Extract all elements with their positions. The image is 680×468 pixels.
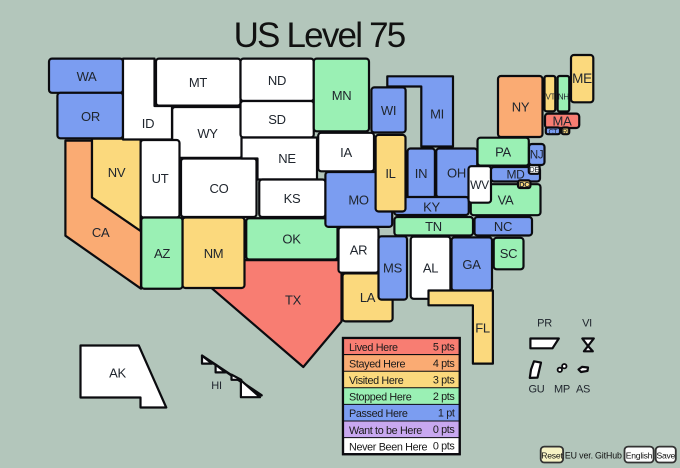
svg-text:CO: CO [210,181,229,196]
svg-text:WI: WI [381,103,396,118]
svg-text:Never Been Here: Never Been Here [349,441,428,453]
svg-text:NE: NE [278,151,296,166]
svg-text:5 pts: 5 pts [433,342,456,354]
svg-text:MI: MI [430,107,444,122]
svg-text:ID: ID [142,116,154,131]
svg-text:Reset: Reset [541,451,563,461]
svg-text:4 pts: 4 pts [433,358,456,370]
svg-text:AZ: AZ [154,246,170,261]
svg-text:TN: TN [425,219,442,234]
svg-text:FL: FL [475,321,490,336]
svg-text:AL: AL [423,261,438,276]
svg-text:CT: CT [549,129,559,136]
svg-text:PR: PR [537,318,552,330]
svg-text:NM: NM [204,246,224,261]
svg-text:2 pts: 2 pts [433,391,456,403]
svg-text:ND: ND [268,73,286,88]
svg-text:Visited Here: Visited Here [349,375,404,387]
svg-text:MT: MT [189,75,208,90]
svg-text:AK: AK [109,366,126,381]
svg-text:English: English [626,451,653,461]
svg-text:NV: NV [108,165,126,180]
svg-text:1 pt: 1 pt [438,408,455,420]
svg-text:3 pts: 3 pts [433,375,456,387]
svg-text:IA: IA [340,145,352,160]
svg-text:0 pts: 0 pts [433,441,456,453]
svg-text:HI: HI [211,380,222,392]
svg-text:OK: OK [282,232,301,247]
svg-text:GU: GU [529,384,545,396]
svg-text:SD: SD [268,112,285,127]
svg-text:NH: NH [558,93,569,102]
svg-text:VI: VI [582,318,592,330]
svg-text:Want to be Here: Want to be Here [349,425,422,437]
svg-text:Stopped Here: Stopped Here [349,392,412,404]
svg-text:OR: OR [81,109,100,124]
svg-text:NJ: NJ [530,150,543,162]
svg-text:IN: IN [415,166,427,181]
svg-text:AS: AS [576,384,590,396]
svg-text:TX: TX [285,293,302,308]
svg-text:NC: NC [494,219,512,234]
svg-text:KY: KY [423,200,440,215]
svg-text:Stayed Here: Stayed Here [349,358,406,370]
svg-text:Passed Here: Passed Here [349,408,408,420]
svg-text:NY: NY [512,100,530,115]
svg-text:VA: VA [498,193,514,208]
svg-text:VT: VT [545,93,555,102]
svg-text:WV: WV [470,178,489,192]
svg-text:GitHub: GitHub [595,450,622,460]
svg-text:LA: LA [360,290,376,305]
svg-text:ME: ME [572,71,592,86]
svg-text:AR: AR [350,243,367,258]
svg-text:WY: WY [197,126,218,141]
svg-text:DE: DE [529,165,539,174]
svg-text:0 pts: 0 pts [433,424,456,436]
svg-text:MN: MN [332,88,352,103]
svg-text:MS: MS [383,261,403,276]
svg-text:KS: KS [284,191,301,206]
svg-text:PA: PA [495,145,511,160]
svg-text:Lived Here: Lived Here [349,342,398,354]
svg-text:MO: MO [348,193,369,208]
svg-text:GA: GA [462,257,481,272]
svg-text:WA: WA [77,69,97,84]
svg-text:RI: RI [562,129,569,136]
svg-text:CA: CA [92,225,110,240]
svg-text:Save: Save [657,451,676,461]
svg-text:EU ver.: EU ver. [565,450,593,460]
svg-text:IL: IL [385,166,395,181]
svg-text:US Level 75: US Level 75 [234,16,405,55]
svg-text:MA: MA [553,114,573,129]
svg-text:SC: SC [500,246,517,261]
svg-text:UT: UT [152,171,169,186]
svg-text:MP: MP [554,384,570,396]
svg-text:OH: OH [447,166,466,181]
svg-text:DC: DC [519,180,530,189]
